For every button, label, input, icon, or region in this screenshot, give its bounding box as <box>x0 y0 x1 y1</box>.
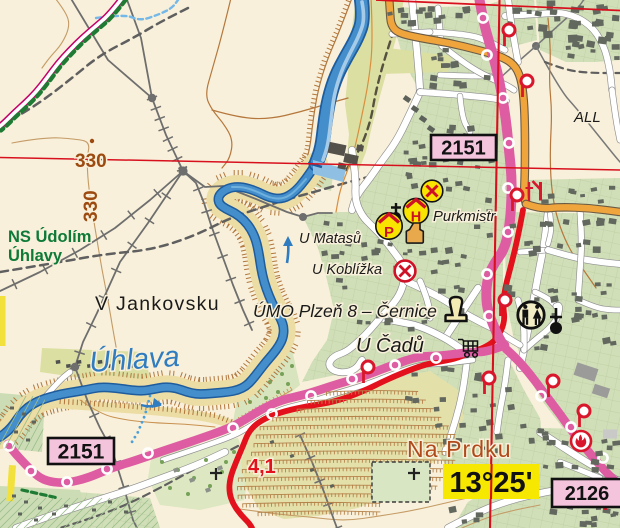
svg-text:V Jankovsku: V Jankovsku <box>95 293 220 315</box>
svg-text:Úhlavy: Úhlavy <box>8 246 63 265</box>
svg-text:330: 330 <box>81 190 102 222</box>
svg-text:2151: 2151 <box>58 441 105 464</box>
svg-text:U Čadů: U Čadů <box>356 334 424 357</box>
svg-text:Na Prdku: Na Prdku <box>407 436 512 462</box>
svg-text:P: P <box>384 224 394 241</box>
svg-text:330: 330 <box>75 151 107 172</box>
svg-text:2126: 2126 <box>565 483 610 505</box>
svg-text:U Koblížka: U Koblížka <box>312 262 382 278</box>
svg-text:ÚMO Plzeň 8 – Černice: ÚMO Plzeň 8 – Černice <box>253 300 437 321</box>
svg-text:Purkmistr: Purkmistr <box>433 209 497 225</box>
svg-text:13°25': 13°25' <box>449 467 532 499</box>
svg-text:U Matasů: U Matasů <box>299 231 361 247</box>
svg-text:2151: 2151 <box>441 138 486 160</box>
svg-text:Úhlava: Úhlava <box>88 340 180 379</box>
svg-text:NS Údolím: NS Údolím <box>8 227 91 246</box>
svg-text:4,1: 4,1 <box>248 456 276 478</box>
svg-text:ALL: ALL <box>573 109 601 126</box>
